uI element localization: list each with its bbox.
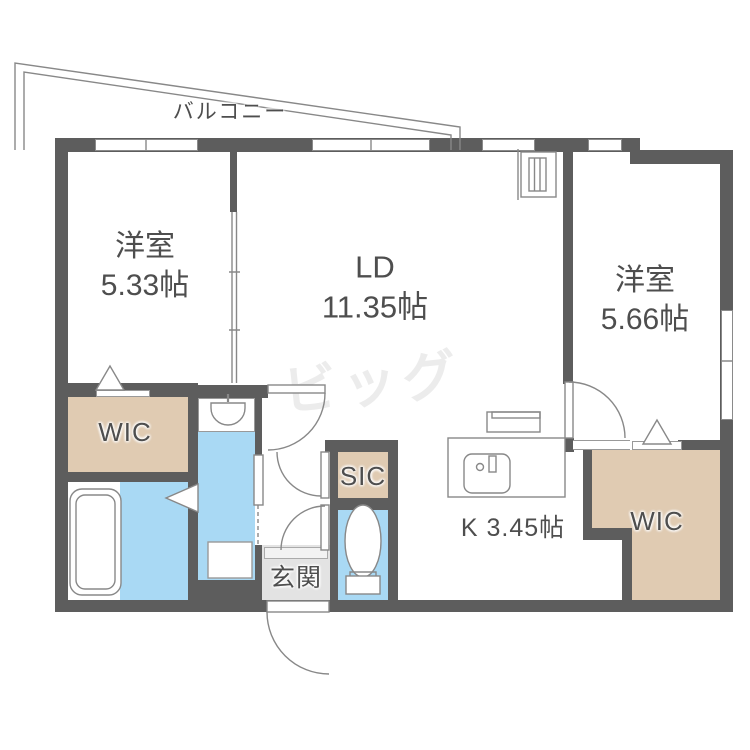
wic-right-label: WIC: [630, 505, 684, 539]
ld-size: 11.35帖: [322, 288, 428, 328]
sliding-partition: [229, 212, 240, 383]
washroom-door: [254, 455, 263, 545]
bedroom2-label: 洋室 5.66帖: [601, 261, 689, 339]
plan-linework: [0, 0, 750, 750]
balcony-label: バルコニー: [173, 98, 288, 125]
toilet-door: [281, 505, 329, 550]
ld-name: LD: [322, 248, 428, 288]
refrigerator-icon: [518, 149, 556, 200]
sic-door: [277, 452, 329, 498]
kitchen-counter-icon: [448, 438, 565, 497]
sic-label: SIC: [340, 460, 386, 494]
wic-left-label: WIC: [98, 416, 152, 450]
kitchen-label: K 3.45帖: [461, 512, 565, 545]
bedroom1-label: 洋室 5.33帖: [101, 227, 189, 305]
bath-folding-door: [166, 484, 198, 512]
bathtub-icon: [70, 489, 121, 595]
bedroom1-name: 洋室: [101, 227, 189, 266]
wic-right-door-triangle: [643, 420, 671, 444]
toilet-icon: [345, 505, 381, 594]
genkan-label: 玄関: [270, 562, 322, 595]
ld-hall-door: [268, 385, 325, 450]
bedroom2-name: 洋室: [601, 261, 689, 300]
floor-plan: ビッグ: [0, 0, 750, 750]
washbasin-icon: [211, 394, 245, 425]
bedroom1-size: 5.33帖: [101, 266, 189, 305]
entrance-door: [267, 601, 329, 674]
washing-machine-icon: [208, 542, 252, 578]
bedroom2-door: [565, 382, 625, 438]
bedroom2-size: 5.66帖: [601, 300, 689, 339]
range-hood-icon: [487, 412, 540, 432]
ld-label: LD 11.35帖: [322, 248, 428, 329]
wic-left-door-triangle: [96, 366, 124, 390]
